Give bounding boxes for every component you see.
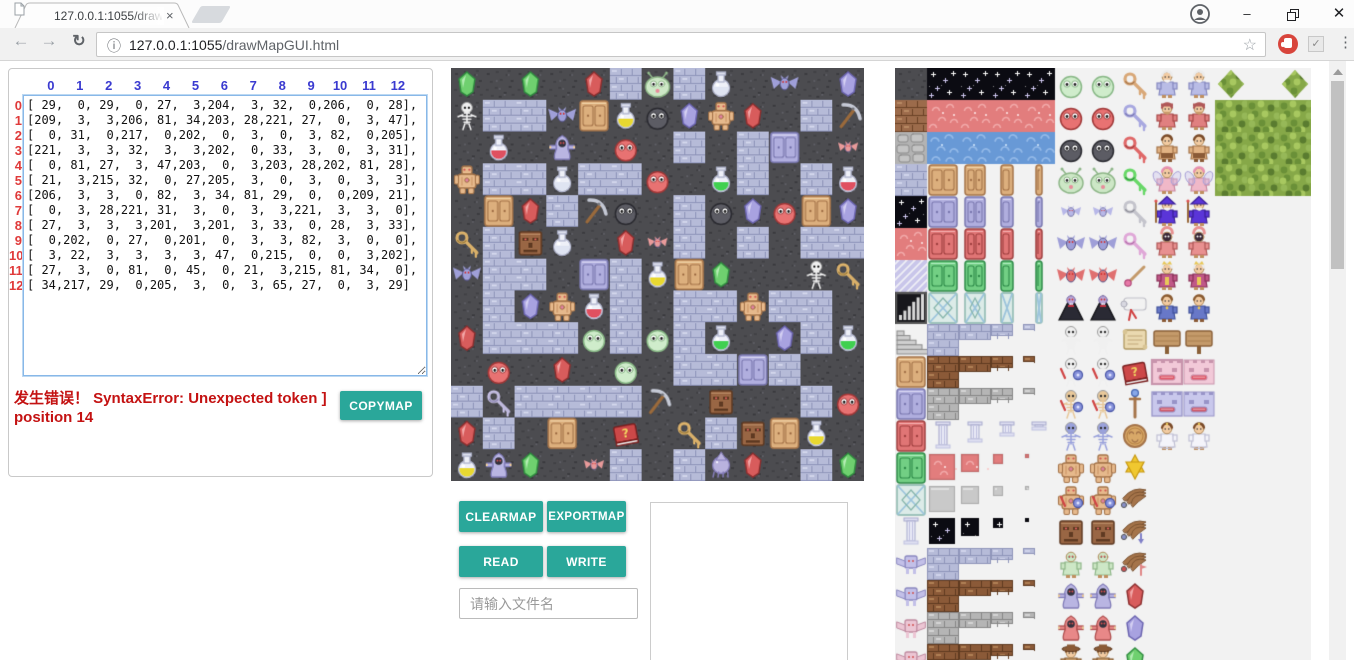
matrix-row-header: 5 [9, 173, 22, 188]
tileset-canvas[interactable] [895, 68, 1311, 660]
tab-title-fade [132, 7, 164, 25]
filename-input[interactable] [459, 588, 638, 619]
browser-window: 127.0.0.1:1055/drawMa × – ✕ ← → ↻ ⓘ 127.… [0, 0, 1354, 660]
export-output-box[interactable] [650, 502, 848, 660]
browser-toolbar: ← → ↻ ⓘ 127.0.0.1:1055/drawMapGUI.html ☆… [0, 28, 1354, 61]
matrix-row-header: 8 [9, 218, 22, 233]
matrix-row-header: 7 [9, 203, 22, 218]
matrix-col-header: 3 [134, 78, 141, 93]
scrollbar-thumb[interactable] [1331, 81, 1344, 269]
address-bar[interactable]: ⓘ 127.0.0.1:1055/drawMapGUI.html ☆ [96, 32, 1266, 57]
matrix-panel: 0123456789101112 0123456789101112 发生错误！ … [8, 68, 433, 477]
window-close-button[interactable]: ✕ [1316, 0, 1354, 28]
matrix-col-header: 4 [163, 78, 170, 93]
tab-close-icon[interactable]: × [166, 8, 174, 23]
forward-button[interactable]: → [36, 31, 62, 51]
new-tab-button[interactable] [191, 6, 231, 23]
profile-icon[interactable] [1190, 4, 1210, 24]
matrix-row-header: 6 [9, 188, 22, 203]
matrix-row-header: 0 [9, 98, 22, 113]
matrix-col-header: 8 [279, 78, 286, 93]
matrix-row-header: 10 [9, 248, 22, 263]
matrix-col-header: 9 [308, 78, 315, 93]
hand-thumb-shape [1281, 42, 1285, 47]
scrollbar-up-arrow-icon[interactable] [1333, 69, 1343, 75]
tileset-panel [895, 68, 1311, 660]
matrix-col-header: 12 [391, 78, 405, 93]
write-button[interactable]: WRITE [547, 546, 626, 577]
browser-tab[interactable]: 127.0.0.1:1055/drawMa × [14, 2, 194, 28]
tab-strip: 127.0.0.1:1055/drawMa × – ✕ [0, 0, 1354, 28]
hand-palm-shape [1284, 38, 1292, 48]
matrix-col-header: 2 [105, 78, 112, 93]
matrix-row-header: 3 [9, 143, 22, 158]
matrix-col-header: 7 [250, 78, 257, 93]
matrix-row-header: 9 [9, 233, 22, 248]
matrix-row-header: 4 [9, 158, 22, 173]
page-scrollbar[interactable] [1329, 61, 1346, 660]
map-canvas[interactable] [451, 68, 864, 481]
error-message: 发生错误！ SyntaxError: Unexpected token ] po… [14, 389, 339, 427]
window-restore-button[interactable] [1272, 0, 1318, 28]
matrix-col-header: 11 [362, 78, 376, 93]
url-text: 127.0.0.1:1055/drawMapGUI.html [129, 37, 339, 53]
reload-button[interactable]: ↻ [66, 31, 92, 51]
url-host: 127.0.0.1:1055 [129, 37, 222, 53]
matrix-col-header: 0 [47, 78, 54, 93]
bookmark-star-icon[interactable]: ☆ [1243, 35, 1257, 55]
matrix-row-header: 2 [9, 128, 22, 143]
matrix-row-header: 11 [9, 263, 22, 278]
matrix-row-header: 12 [9, 278, 22, 293]
page-favicon-icon [14, 2, 25, 16]
back-button[interactable]: ← [8, 31, 34, 51]
matrix-col-header: 1 [76, 78, 83, 93]
matrix-col-header: 10 [333, 78, 347, 93]
browser-menu-icon[interactable]: ⋮ [1338, 33, 1353, 51]
matrix-textarea[interactable] [23, 95, 427, 376]
clearmap-button[interactable]: CLEARMAP [459, 501, 543, 532]
copymap-button[interactable]: COPYMAP [340, 391, 422, 420]
window-minimize-button[interactable]: – [1224, 0, 1270, 28]
error-line1: 发生错误！ SyntaxError: Unexpected token ] [14, 389, 339, 408]
exportmap-button[interactable]: EXPORTMAP [547, 501, 626, 532]
url-path: /drawMapGUI.html [222, 37, 339, 53]
matrix-col-header: 5 [192, 78, 199, 93]
checkbox-extension-icon[interactable]: ✓ [1308, 36, 1324, 52]
matrix-row-header: 1 [9, 113, 22, 128]
hand-extension-icon[interactable] [1278, 34, 1298, 54]
matrix-col-header: 6 [221, 78, 228, 93]
error-line2: position 14 [14, 408, 339, 427]
page-info-icon[interactable]: ⓘ [107, 36, 121, 56]
restore-square-front [1287, 12, 1296, 21]
read-button[interactable]: READ [459, 546, 543, 577]
